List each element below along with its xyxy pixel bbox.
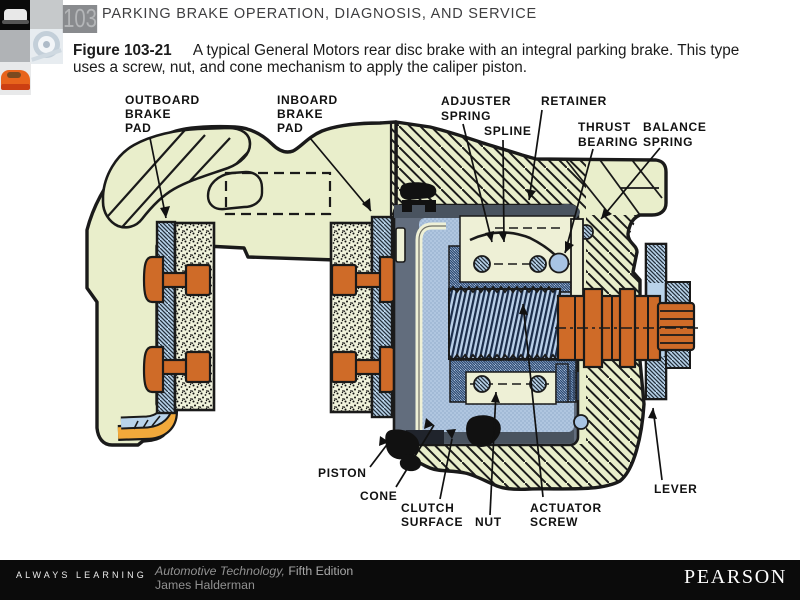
svg-text:PAD: PAD: [125, 121, 152, 135]
svg-text:NUT: NUT: [475, 515, 502, 529]
svg-text:ADJUSTER: ADJUSTER: [441, 94, 511, 108]
svg-text:BRAKE: BRAKE: [125, 107, 171, 121]
svg-text:THRUST: THRUST: [578, 120, 631, 134]
svg-text:SPRING: SPRING: [643, 135, 693, 149]
svg-text:BEARING: BEARING: [578, 135, 638, 149]
svg-text:ACTUATOR: ACTUATOR: [530, 501, 602, 515]
svg-text:INBOARD: INBOARD: [277, 93, 338, 107]
svg-text:SPRING: SPRING: [441, 109, 491, 123]
svg-text:PAD: PAD: [277, 121, 304, 135]
svg-text:BRAKE: BRAKE: [277, 107, 323, 121]
svg-text:SPLINE: SPLINE: [484, 124, 532, 138]
svg-text:OUTBOARD: OUTBOARD: [125, 93, 200, 107]
svg-text:BALANCE: BALANCE: [643, 120, 707, 134]
svg-text:LEVER: LEVER: [654, 482, 698, 496]
svg-text:PISTON: PISTON: [318, 466, 367, 480]
svg-text:RETAINER: RETAINER: [541, 94, 607, 108]
svg-text:CONE: CONE: [360, 489, 397, 503]
svg-text:SURFACE: SURFACE: [401, 515, 463, 529]
svg-text:CLUTCH: CLUTCH: [401, 501, 455, 515]
svg-text:SCREW: SCREW: [530, 515, 578, 529]
